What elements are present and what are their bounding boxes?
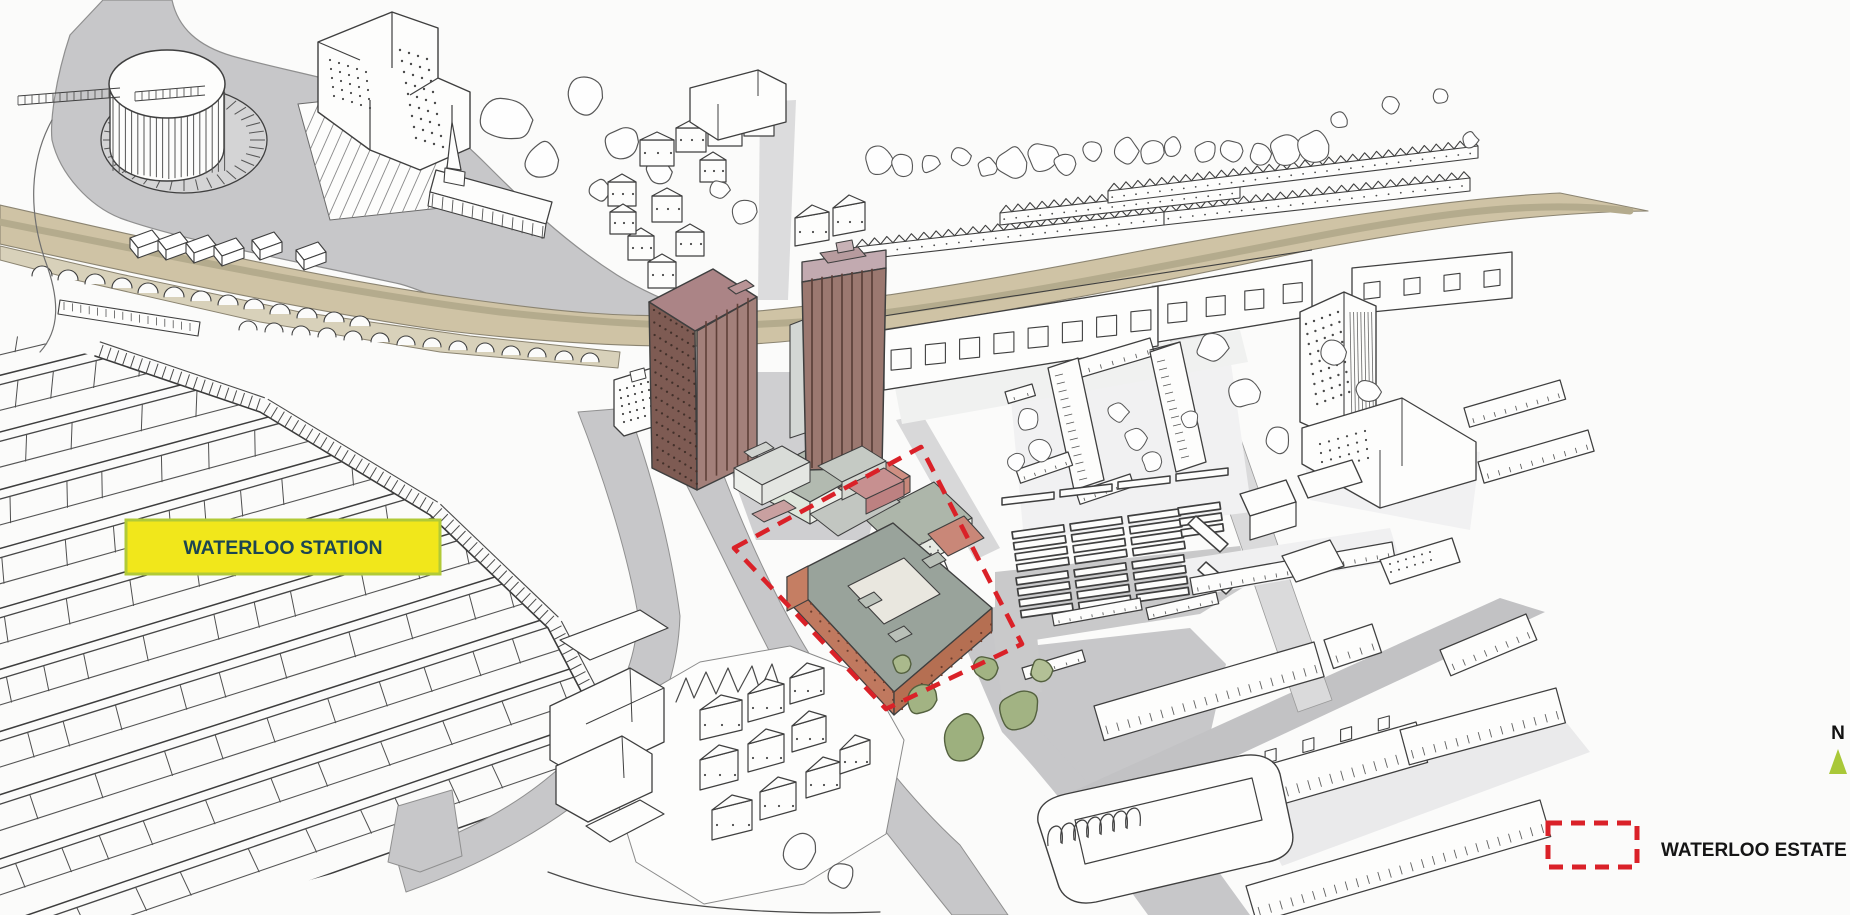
svg-text:WATERLOO ESTATE: WATERLOO ESTATE <box>1661 840 1847 861</box>
svg-text:N: N <box>1831 723 1845 744</box>
svg-text:WATERLOO STATION: WATERLOO STATION <box>183 537 382 559</box>
